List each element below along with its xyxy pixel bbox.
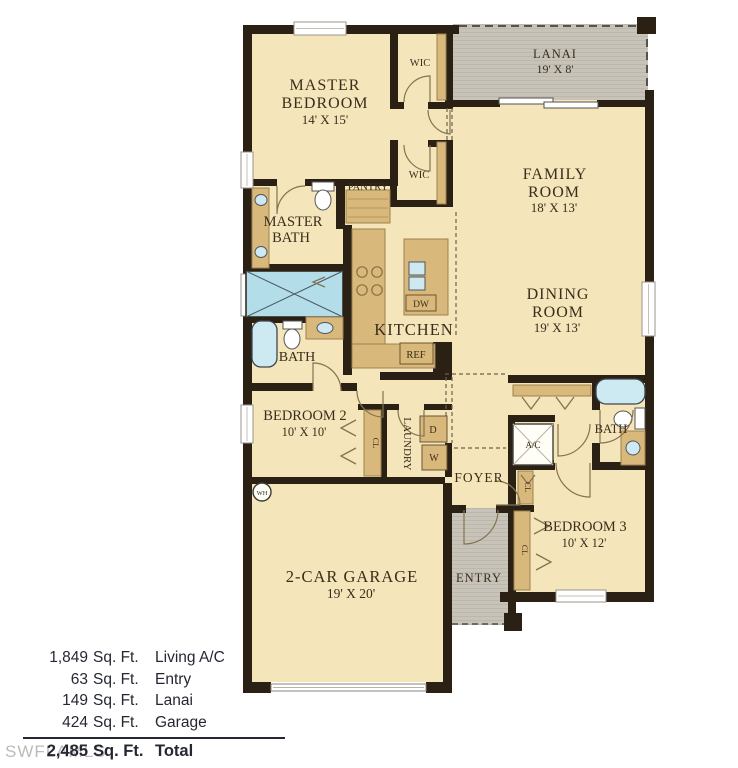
label-hall-bath: BATH xyxy=(279,350,316,365)
window-bedroom2-left xyxy=(241,405,253,443)
area-unit: Sq. Ft. xyxy=(93,669,145,691)
total-unit: Sq. Ft. xyxy=(93,741,145,763)
area-summary: 1,849 Sq. Ft. Living A/C 63 Sq. Ft. Entr… xyxy=(0,647,310,763)
area-row-lanai: 149 Sq. Ft. Lanai xyxy=(0,690,310,712)
entry-porch-area xyxy=(452,508,508,625)
label-refrigerator: REF xyxy=(406,350,425,361)
label-cl-bedroom2: CL xyxy=(371,438,381,449)
label-bedroom3-dims: 10' X 12' xyxy=(562,536,607,550)
hall-vanity xyxy=(306,317,343,339)
window-bedroom3-bottom xyxy=(556,590,606,602)
label-dishwasher: DW xyxy=(413,300,429,310)
area-label: Garage xyxy=(155,712,207,734)
label-master-bedroom-1: MASTER xyxy=(290,77,361,94)
label-wic-upper: WIC xyxy=(410,58,430,69)
label-wic-lower: WIC xyxy=(409,170,429,181)
label-water-heater: WH xyxy=(257,490,268,497)
label-family-room-2: ROOM xyxy=(528,184,580,201)
area-value: 149 xyxy=(0,690,88,712)
label-master-bedroom-dims: 14' X 15' xyxy=(302,112,349,127)
label-pantry: PANTRY xyxy=(348,182,389,193)
floor-plan-page: LANAI 19' X 8' MASTER BEDROOM 14' X 15' … xyxy=(0,0,738,768)
label-garage: 2-CAR GARAGE xyxy=(286,567,419,586)
total-value: 2,485 xyxy=(0,741,88,763)
label-master-bath-2: BATH xyxy=(272,230,310,246)
label-dining-room-dims: 19' X 13' xyxy=(534,320,581,335)
area-value: 1,849 xyxy=(0,647,88,669)
area-row-garage: 424 Sq. Ft. Garage xyxy=(0,712,310,734)
area-unit: Sq. Ft. xyxy=(93,647,145,669)
hall-bathtub xyxy=(252,321,277,367)
pantry-shelves xyxy=(346,190,390,223)
area-row-entry: 63 Sq. Ft. Entry xyxy=(0,669,310,691)
label-cl-foyer: CL xyxy=(523,482,532,492)
label-kitchen: KITCHEN xyxy=(374,320,453,339)
label-family-room-1: FAMILY xyxy=(523,166,588,183)
label-bedroom2-dims: 10' X 10' xyxy=(282,425,327,439)
window-master-left xyxy=(241,152,253,188)
label-lanai: LANAI xyxy=(533,47,577,61)
label-bedroom3: BEDROOM 3 xyxy=(543,519,626,535)
label-bath2: BATH xyxy=(595,422,628,436)
label-dining-room-1: DINING xyxy=(527,286,590,303)
window-dining-right xyxy=(642,282,655,336)
area-label: Living A/C xyxy=(155,647,225,669)
label-dining-room-2: ROOM xyxy=(532,304,584,321)
total-divider xyxy=(23,737,285,739)
label-bedroom2: BEDROOM 2 xyxy=(263,408,346,424)
shower xyxy=(246,271,343,317)
label-lanai-dims: 19' X 8' xyxy=(537,62,574,76)
area-value: 424 xyxy=(0,712,88,734)
label-foyer: FOYER xyxy=(454,470,503,485)
bath2-vanity xyxy=(621,431,645,465)
bath2-tub xyxy=(596,379,645,404)
label-family-room-dims: 18' X 13' xyxy=(531,200,578,215)
area-label: Entry xyxy=(155,669,191,691)
label-dryer: D xyxy=(429,425,436,436)
label-entry: ENTRY xyxy=(456,571,502,585)
window-master-top xyxy=(294,22,346,35)
label-cl-bedroom3: CL xyxy=(520,545,529,555)
area-row-living: 1,849 Sq. Ft. Living A/C xyxy=(0,647,310,669)
area-unit: Sq. Ft. xyxy=(93,712,145,734)
area-label: Lanai xyxy=(155,690,193,712)
label-washer: W xyxy=(429,453,439,464)
area-row-total: 2,485 Sq. Ft. Total xyxy=(0,741,310,763)
area-value: 63 xyxy=(0,669,88,691)
area-unit: Sq. Ft. xyxy=(93,690,145,712)
label-ac: A/C xyxy=(525,440,540,450)
total-label: Total xyxy=(155,741,193,763)
label-garage-dims: 19' X 20' xyxy=(327,586,375,601)
label-master-bath-1: MASTER xyxy=(264,214,323,230)
label-laundry: LAUNDRY xyxy=(401,417,413,470)
hall-closet-shelf xyxy=(513,385,591,396)
label-master-bedroom-2: BEDROOM xyxy=(281,95,368,112)
